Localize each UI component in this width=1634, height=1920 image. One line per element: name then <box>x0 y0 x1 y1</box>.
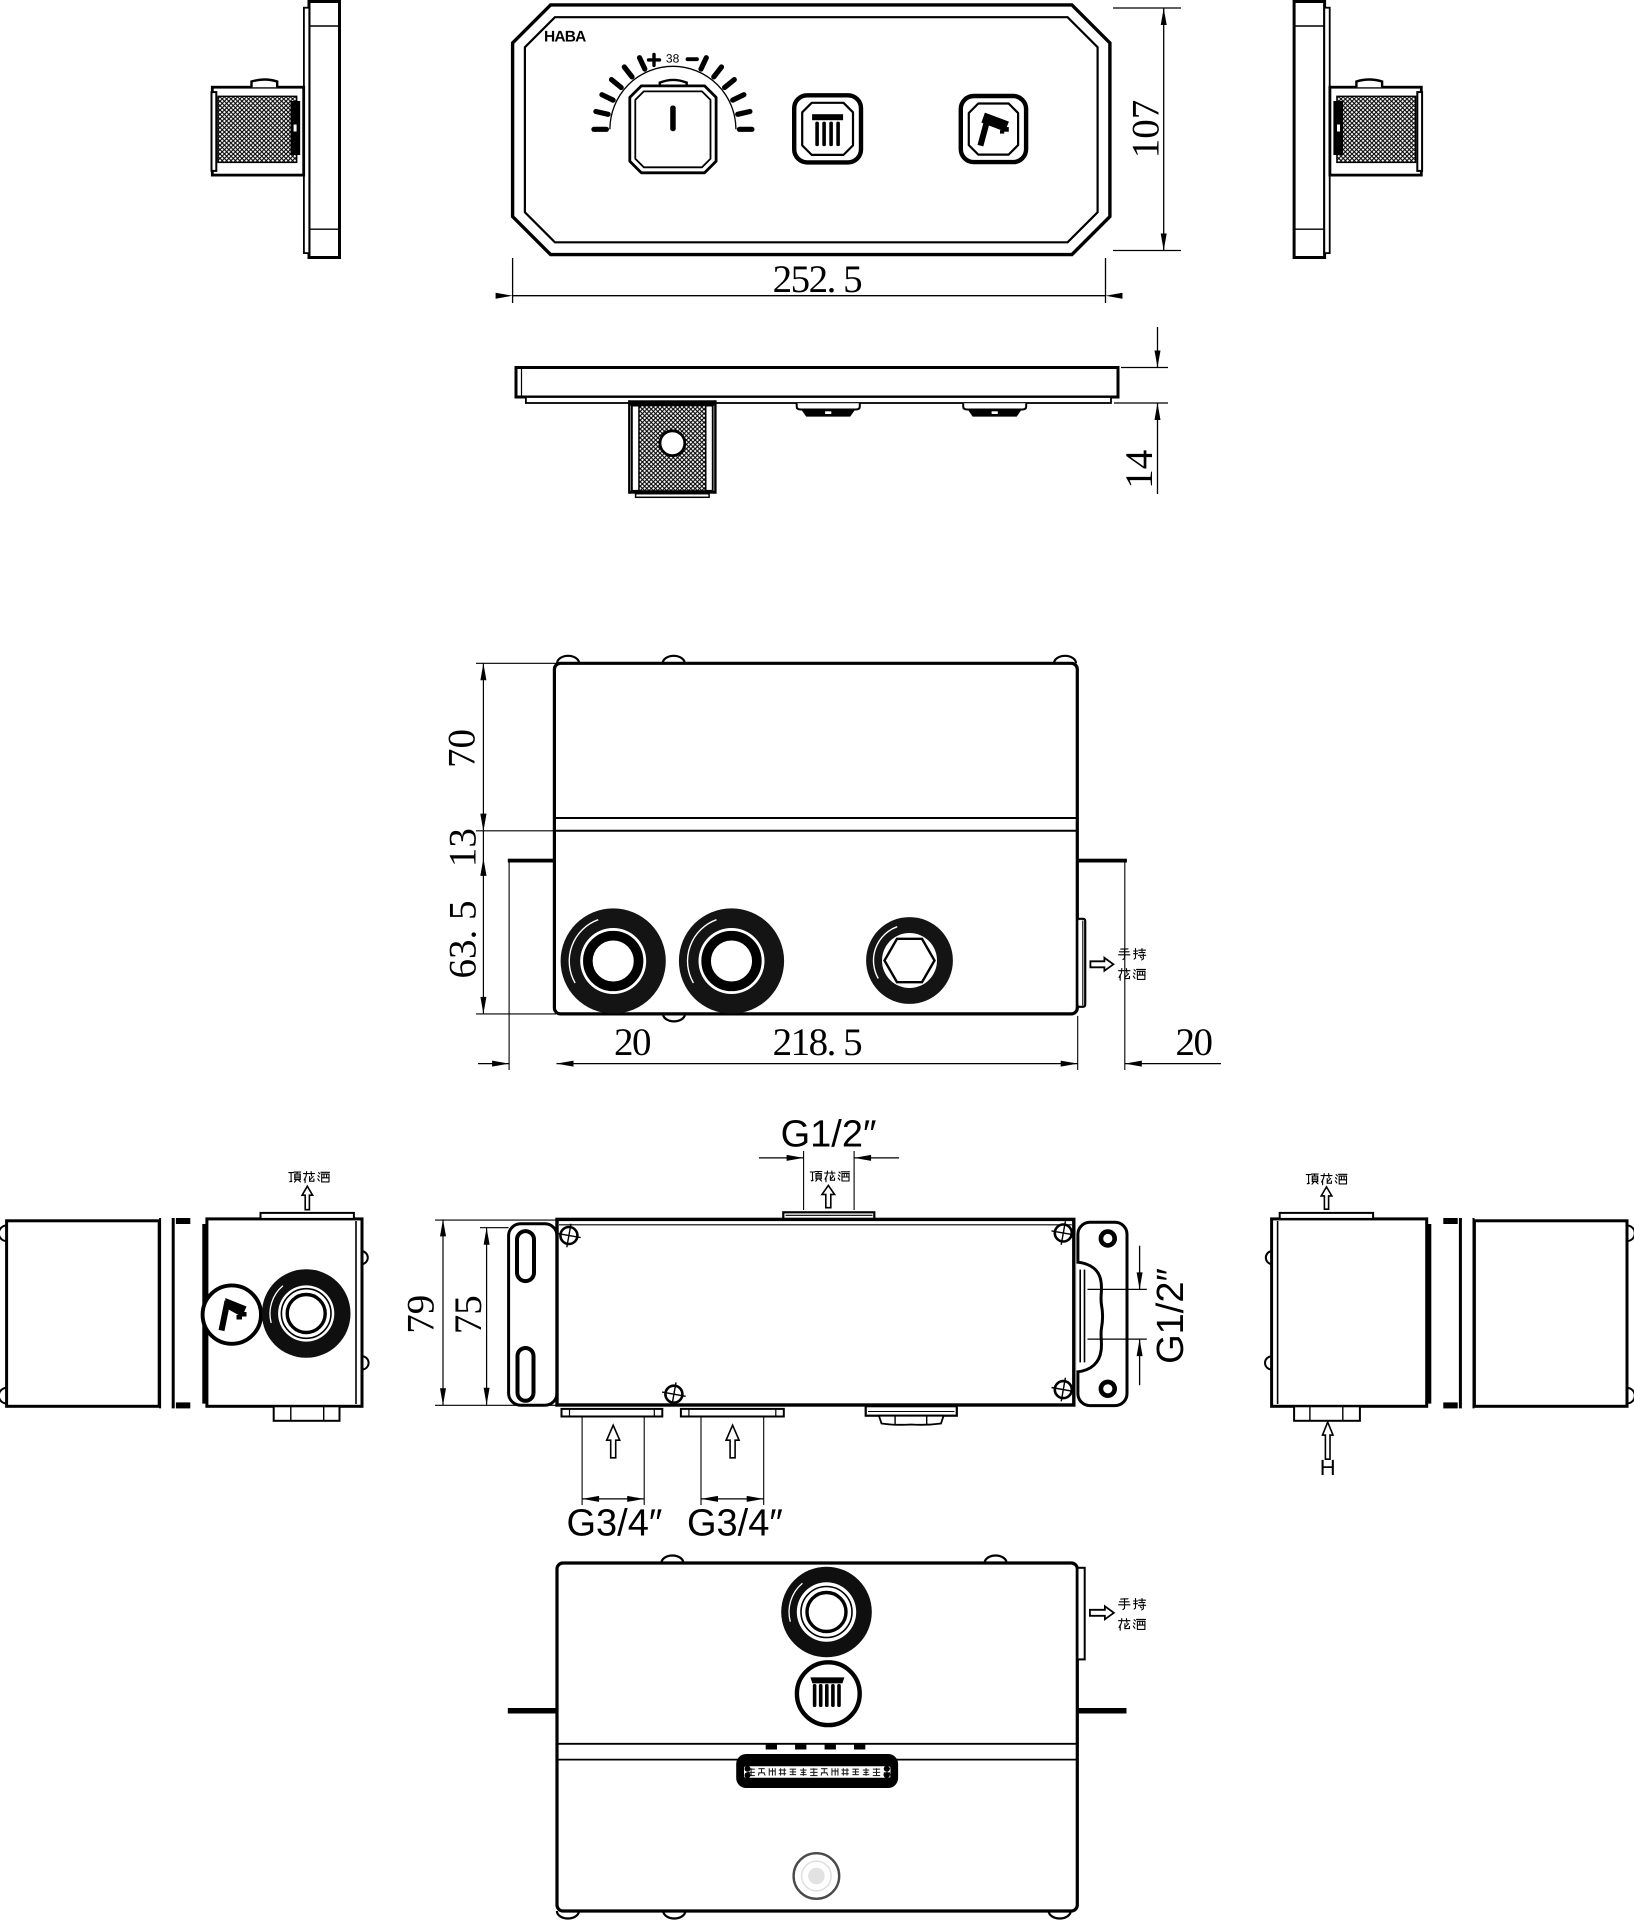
svg-text:63. 5: 63. 5 <box>441 901 484 979</box>
svg-text:70: 70 <box>441 729 484 768</box>
svg-text:G3/4″: G3/4″ <box>566 1503 662 1545</box>
svg-text:38: 38 <box>666 51 680 65</box>
svg-text:75: 75 <box>447 1295 490 1334</box>
svg-text:HABA: HABA <box>544 29 586 46</box>
svg-text:G1/2″: G1/2″ <box>781 1114 877 1156</box>
svg-text:13: 13 <box>442 828 485 867</box>
svg-text:218. 5: 218. 5 <box>773 1021 862 1064</box>
svg-text:20: 20 <box>614 1021 651 1064</box>
svg-text:79: 79 <box>399 1295 442 1334</box>
svg-text:G1/2″: G1/2″ <box>1150 1268 1192 1364</box>
svg-text:107: 107 <box>1125 100 1168 159</box>
svg-text:20: 20 <box>1176 1021 1213 1064</box>
svg-text:G3/4″: G3/4″ <box>687 1503 783 1545</box>
svg-text:14: 14 <box>1118 450 1161 489</box>
svg-text:252. 5: 252. 5 <box>773 258 862 301</box>
svg-text:H: H <box>1320 1455 1336 1480</box>
